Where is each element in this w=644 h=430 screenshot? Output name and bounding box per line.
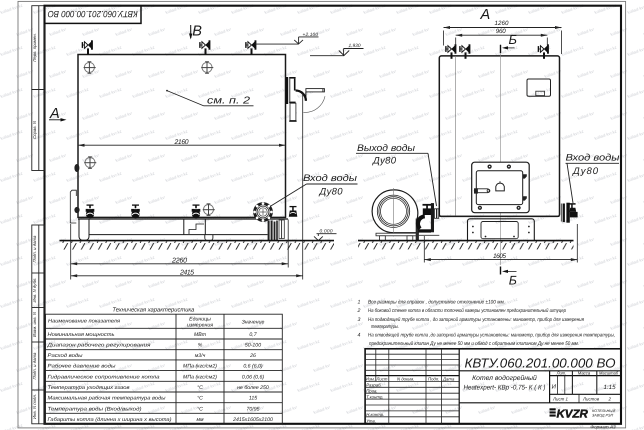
svg-text:Лист: Лист xyxy=(375,376,387,381)
svg-text:1: 1 xyxy=(358,300,361,306)
svg-text:Подп.: Подп. xyxy=(428,376,439,381)
svg-text:N докум.: N докум. xyxy=(397,376,414,381)
svg-text:Лит.: Лит. xyxy=(556,370,567,375)
svg-text:1:15: 1:15 xyxy=(603,384,616,391)
svg-text:%: % xyxy=(198,343,203,349)
svg-text:Пров.: Пров. xyxy=(366,388,377,393)
svg-text:Дата: Дата xyxy=(442,376,455,381)
svg-text:КОТЕЛЬНЫЙ: КОТЕЛЬНЫЙ xyxy=(592,408,616,413)
svg-text:960: 960 xyxy=(496,28,507,35)
svg-text:Габариты котла (длинна х ширин: Габариты котла (длинна х ширина х высота… xyxy=(48,417,172,423)
svg-text:Значение: Значение xyxy=(242,320,265,326)
svg-text:2160: 2160 xyxy=(174,139,189,146)
svg-text:2415х1605х2100: 2415х1605х2100 xyxy=(232,417,273,423)
svg-text:не более 250: не более 250 xyxy=(237,385,269,391)
svg-text:Лист: Лист xyxy=(552,396,565,401)
svg-text:Справ. N: Справ. N xyxy=(32,120,37,139)
svg-text:Взам. инв. N: Взам. инв. N xyxy=(32,311,37,337)
svg-text:50-100: 50-100 xyxy=(245,343,261,349)
svg-text:1.930: 1.930 xyxy=(349,43,361,49)
svg-text:м3/ч: м3/ч xyxy=(195,353,206,359)
svg-text:Вход воды: Вход воды xyxy=(303,173,357,184)
svg-text:Гидравлическое сопротивление к: Гидравлическое сопротивление котла xyxy=(48,374,160,380)
svg-text:На отводящей трубе котла ,до з: На отводящей трубе котла ,до запорной ар… xyxy=(368,333,615,339)
svg-text:В: В xyxy=(192,24,202,40)
svg-text:Максимальная рабочая температу: Максимальная рабочая температура воды xyxy=(48,396,166,402)
svg-text:0,7: 0,7 xyxy=(249,332,257,338)
svg-text:предохранительный клапан Ду н: предохранительный клапан Ду не менее 50 … xyxy=(369,341,579,347)
svg-text:0.000: 0.000 xyxy=(320,228,333,234)
svg-text:Вход воды: Вход воды xyxy=(566,153,620,164)
svg-text:4: 4 xyxy=(358,333,361,339)
svg-text:Температура уходящих газов: Температура уходящих газов xyxy=(48,385,130,391)
svg-text:Наименование показателя: Наименование показателя xyxy=(48,319,120,325)
svg-text:Разраб.: Разраб. xyxy=(366,383,382,388)
svg-text:°С: °С xyxy=(197,406,203,412)
svg-text:Подп. и дата: Подп. и дата xyxy=(32,235,37,263)
svg-text:2: 2 xyxy=(608,396,612,401)
svg-text:температуры.: температуры. xyxy=(371,324,399,330)
svg-text:Перв. примен.: Перв. примен. xyxy=(32,33,37,62)
svg-text:70/95: 70/95 xyxy=(247,406,260,412)
svg-text:КВТУ.060.201.00.000 ВО: КВТУ.060.201.00.000 ВО xyxy=(48,9,138,19)
svg-text:Ду80: Ду80 xyxy=(319,186,344,197)
svg-text:Расход воды: Расход воды xyxy=(48,353,83,359)
svg-text:2: 2 xyxy=(357,308,361,314)
svg-text:измерения: измерения xyxy=(187,323,213,329)
svg-text:Инв. N подл.: Инв. N подл. xyxy=(32,394,37,419)
svg-text:1605: 1605 xyxy=(493,253,506,260)
svg-text:см. п. 2: см. п. 2 xyxy=(207,96,251,107)
svg-text:0,6 (6,0): 0,6 (6,0) xyxy=(243,364,263,370)
svg-text:Т.контр.: Т.контр. xyxy=(366,394,383,399)
svg-text:Инв. N дубл.: Инв. N дубл. xyxy=(32,278,37,303)
svg-text:Все размеры для справок , допу: Все размеры для справок , допустимое отк… xyxy=(368,300,505,306)
svg-text:Формат А3: Формат А3 xyxy=(590,424,616,429)
svg-text:Техническая характеристика: Техническая характеристика xyxy=(112,307,195,314)
svg-text:2415: 2415 xyxy=(179,269,194,276)
svg-text:°С: °С xyxy=(197,396,203,402)
svg-text:МПа (кгс/см2): МПа (кгс/см2) xyxy=(183,364,217,370)
svg-text:KVZR: KVZR xyxy=(557,409,589,421)
svg-text:2260: 2260 xyxy=(171,257,187,264)
svg-text:МПа (кгс/см2): МПа (кгс/см2) xyxy=(183,374,217,380)
svg-text:На подводящей трубе котла , д: На подводящей трубе котла , до запорной … xyxy=(368,317,584,323)
svg-text:115: 115 xyxy=(249,396,257,402)
svg-text:Подп. и дата: Подп. и дата xyxy=(32,352,37,380)
svg-text:Ду80: Ду80 xyxy=(572,166,599,177)
svg-text:На боковой стенке котла в обла: На боковой стенке котла в области топочн… xyxy=(368,308,566,314)
svg-text:Диапазон рабочего регулировани: Диапазон рабочего регулирования xyxy=(46,343,150,349)
svg-text:Б: Б xyxy=(509,32,518,47)
svg-text:ЗАВОД РЭП: ЗАВОД РЭП xyxy=(592,413,613,417)
svg-text:Выход воды: Выход воды xyxy=(357,143,415,154)
svg-text:КВТУ.060.201.00.000 ВО: КВТУ.060.201.00.000 ВО xyxy=(465,355,616,370)
svg-text:3: 3 xyxy=(358,317,361,323)
svg-text:Heatexpert- КВр -0,75- К ( К ): Heatexpert- КВр -0,75- К ( К ) xyxy=(464,384,546,391)
svg-text:+2.100: +2.100 xyxy=(303,32,319,38)
svg-text:МВт: МВт xyxy=(194,332,207,338)
svg-text:Б: Б xyxy=(509,274,517,288)
svg-text:Ду80: Ду80 xyxy=(372,156,397,167)
svg-text:0,06 (0,6): 0,06 (0,6) xyxy=(242,374,264,380)
svg-text:Номинальная мощность: Номинальная мощность xyxy=(48,332,115,338)
svg-text:Изм.: Изм. xyxy=(366,376,375,381)
svg-text:мм: мм xyxy=(196,417,204,423)
svg-text:Н.контр.: Н.контр. xyxy=(366,412,384,417)
svg-text:Масса: Масса xyxy=(578,370,591,375)
svg-text:Температура воды (Вход/выход): Температура воды (Вход/выход) xyxy=(48,406,142,412)
svg-text:И: И xyxy=(552,384,557,391)
svg-text:А: А xyxy=(480,7,491,23)
svg-text:1260: 1260 xyxy=(495,20,510,27)
svg-text:Листов: Листов xyxy=(582,396,600,401)
svg-text:26: 26 xyxy=(249,353,256,359)
svg-text:Рабочее давление воды: Рабочее давление воды xyxy=(48,364,116,370)
svg-text:Масштаб: Масштаб xyxy=(599,370,619,375)
svg-text:Котел водогрейный: Котел водогрейный xyxy=(472,374,537,382)
svg-text:Утв.: Утв. xyxy=(366,418,376,423)
svg-text:°С: °С xyxy=(197,385,203,391)
